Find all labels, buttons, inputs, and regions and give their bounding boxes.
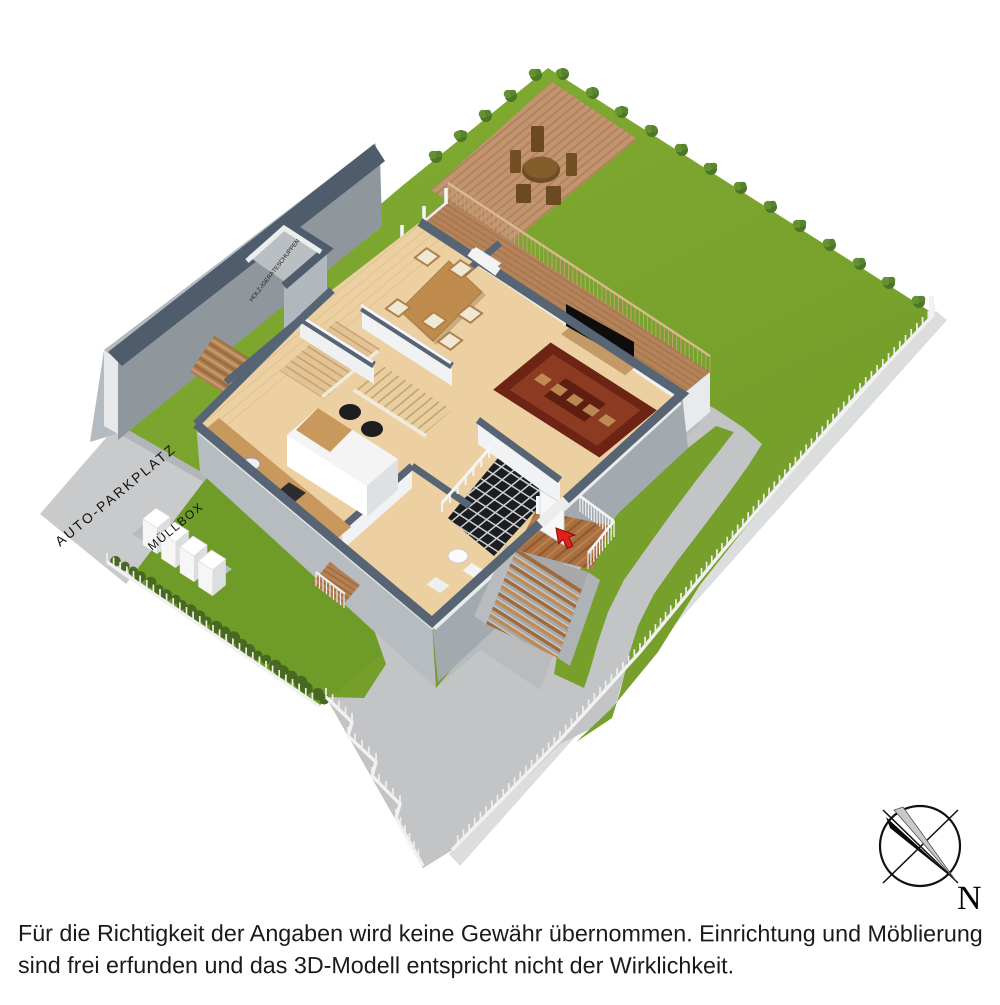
svg-text:Für die Richtigkeit der Angabe: Für die Richtigkeit der Angaben wird kei… [18,920,983,947]
svg-text:sind frei erfunden und das 3D-: sind frei erfunden und das 3D-Modell ent… [18,952,734,978]
svg-text:N: N [957,880,982,917]
